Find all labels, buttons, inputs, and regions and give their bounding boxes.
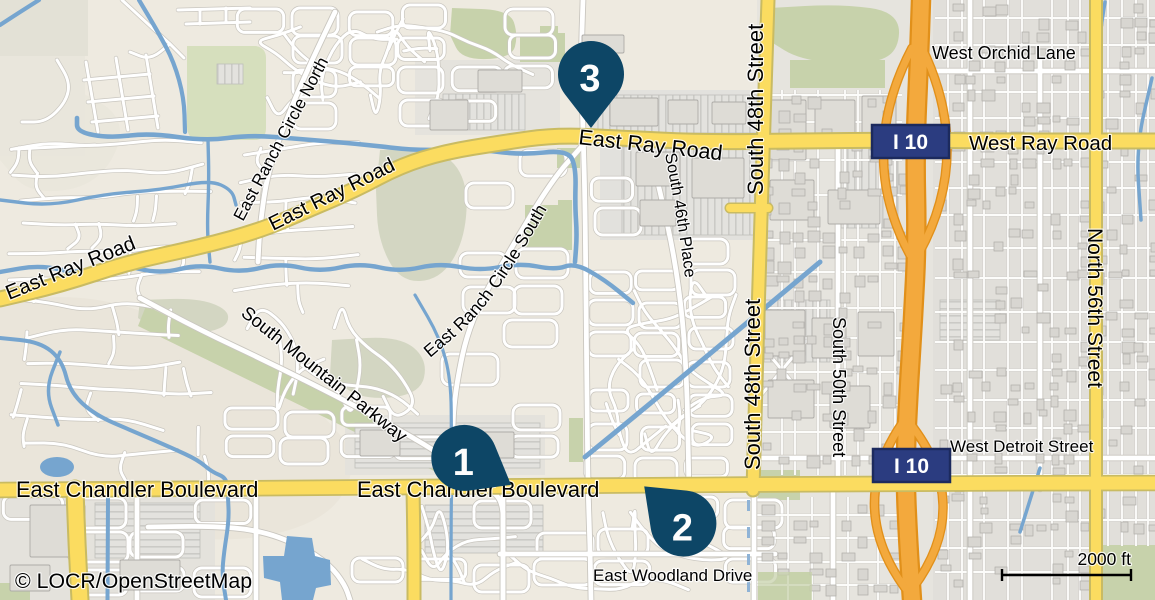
- svg-text:South 48th Street: South 48th Street: [740, 299, 765, 470]
- svg-text:West Orchid Lane: West Orchid Lane: [932, 43, 1076, 63]
- svg-text:West Detroit Street: West Detroit Street: [950, 437, 1094, 456]
- svg-text:3: 3: [579, 58, 600, 100]
- svg-text:1: 1: [453, 442, 474, 484]
- svg-text:West Ray Road: West Ray Road: [969, 132, 1112, 155]
- svg-text:South 50th Street: South 50th Street: [829, 317, 849, 457]
- svg-text:East Chandler Boulevard: East Chandler Boulevard: [16, 477, 258, 502]
- svg-text:East Woodland Drive: East Woodland Drive: [593, 566, 752, 585]
- svg-text:I 10: I 10: [894, 455, 929, 478]
- svg-text:I 10: I 10: [893, 131, 928, 154]
- svg-text:South 48th Street: South 48th Street: [743, 24, 768, 195]
- svg-text:2000 ft: 2000 ft: [1077, 549, 1131, 569]
- svg-text:© LOCR/OpenStreetMap: © LOCR/OpenStreetMap: [15, 569, 252, 593]
- svg-text:2: 2: [672, 508, 693, 550]
- svg-text:North 56th Street: North 56th Street: [1083, 228, 1106, 388]
